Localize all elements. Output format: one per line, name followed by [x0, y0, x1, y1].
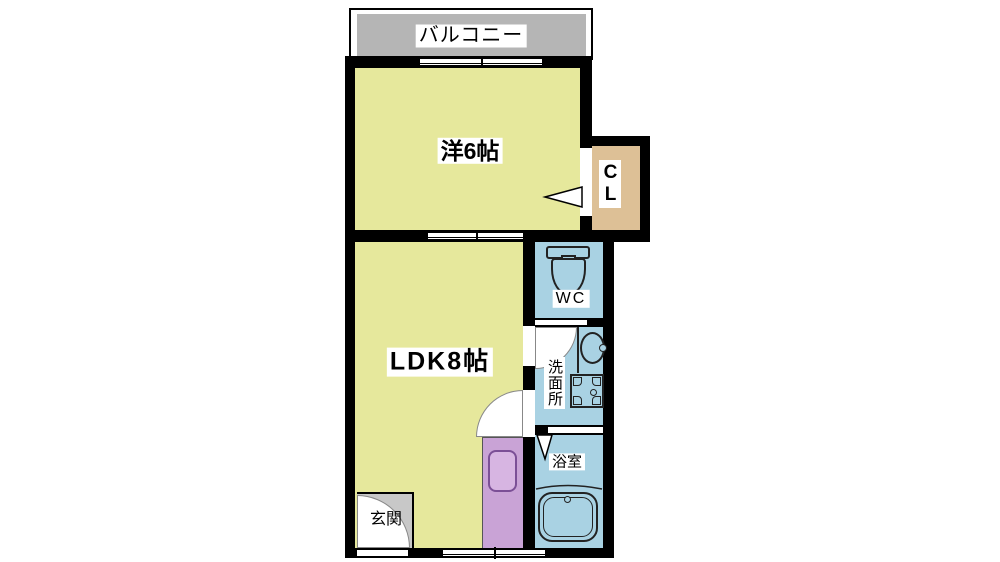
window [443, 548, 545, 558]
bathroom-label: 浴室 [549, 453, 585, 470]
washroom-door-opening [523, 326, 535, 366]
closet-door-opening [580, 148, 592, 216]
wall-closet-right [640, 136, 650, 242]
window [428, 231, 523, 241]
wall-wc-washroom [587, 318, 603, 327]
wm-corner [573, 377, 582, 386]
closet-label: CL [599, 160, 621, 208]
bathtub-drain-icon [564, 496, 571, 503]
vanity-counter-line [577, 327, 579, 373]
bath-door-opening [548, 425, 603, 435]
wall-left [345, 56, 355, 558]
floor-plan: バルコニー 洋6帖 CL WC 洗面所 浴室 LDK8帖 玄関 [0, 0, 1000, 562]
balcony-label: バルコニー [416, 25, 527, 48]
kitchen-sink-icon [488, 450, 517, 492]
wall-right-lower [603, 242, 614, 558]
window [420, 57, 542, 67]
wall-room-right-upper [580, 56, 592, 148]
western-room-label: 洋6帖 [438, 138, 503, 164]
wc-door-opening [535, 318, 587, 327]
faucet-icon [599, 344, 607, 352]
wm-dial-icon [590, 389, 597, 396]
bathtub-inner [543, 497, 593, 537]
wm-corner [592, 377, 601, 386]
washing-machine-icon [570, 374, 604, 408]
ldk-door-opening [523, 390, 535, 437]
ldk-label: LDK8帖 [387, 348, 493, 377]
entrance-label: 玄関 [367, 511, 405, 529]
washroom-label: 洗面所 [544, 357, 565, 409]
entrance-door-opening [357, 548, 408, 558]
wm-corner [592, 396, 601, 405]
wm-corner [573, 396, 582, 405]
toilet-label: WC [553, 290, 590, 308]
